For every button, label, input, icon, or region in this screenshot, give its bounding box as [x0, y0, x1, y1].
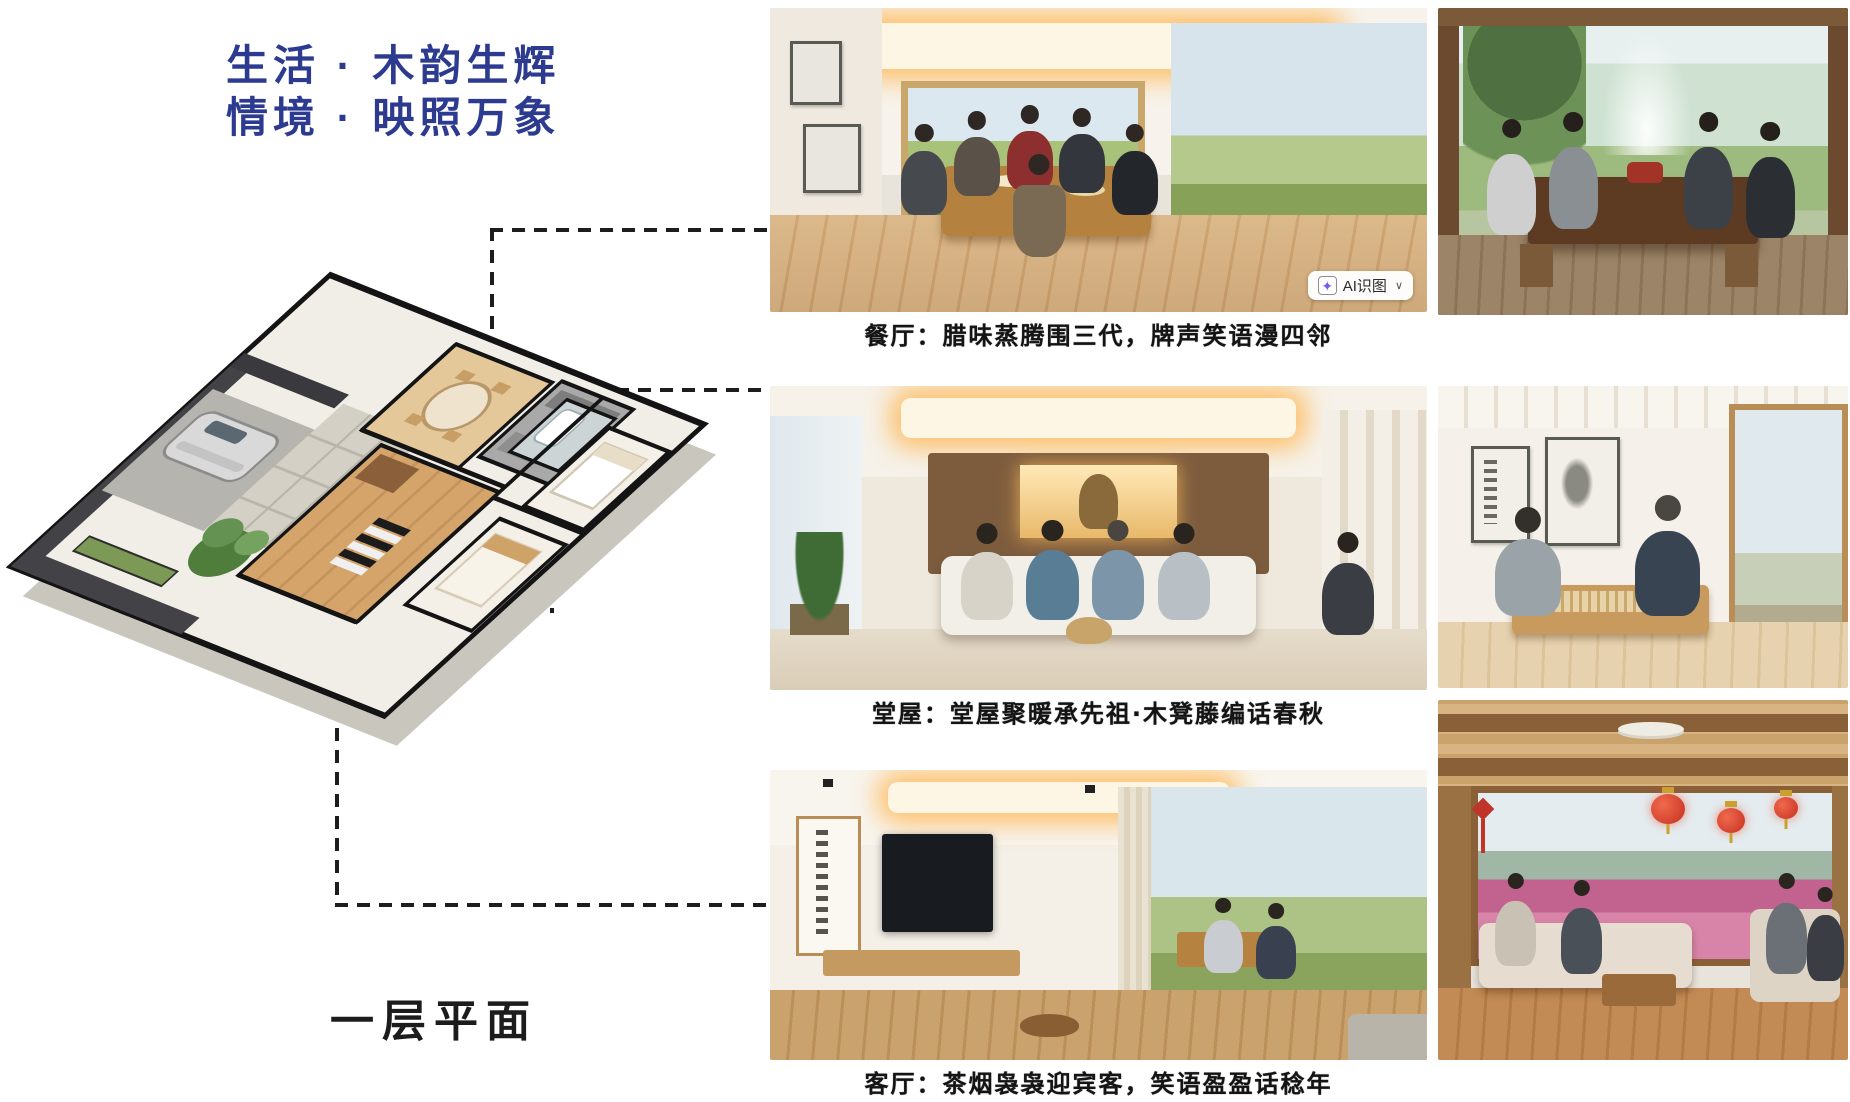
wood-floor — [770, 990, 1427, 1060]
wall-art — [803, 124, 862, 194]
person-silhouette — [1112, 124, 1158, 215]
callout-line-living-horizontal — [335, 903, 772, 907]
caption-dining: 餐厅：腊味蒸腾围三代，牌声笑语漫四邻 — [770, 316, 1427, 351]
presentation-slide: 生活 · 木韵生辉 情境 · 映照万象 — [0, 0, 1850, 1102]
floor-plan-label: 一层平面 — [330, 985, 538, 1049]
ceiling-cove-light — [901, 398, 1295, 438]
chair — [1725, 244, 1758, 287]
photo-rattan-weaving — [1438, 386, 1848, 688]
floor-plan-isometric — [0, 255, 780, 855]
person-weaving — [1495, 507, 1561, 616]
downlight — [823, 779, 833, 787]
person-silhouette — [1204, 898, 1243, 973]
photo-dining-room-family: ✦ AI识图 ∨ — [770, 8, 1427, 312]
person-silhouette — [961, 523, 1014, 620]
armchair — [1348, 1014, 1427, 1060]
red-lantern — [1717, 808, 1745, 833]
tv-cabinet — [823, 950, 1020, 976]
hot-pot — [1627, 162, 1664, 183]
tv-screen — [882, 834, 994, 933]
person-silhouette — [1059, 108, 1105, 193]
photo-lantern-living-room — [1438, 700, 1848, 1060]
potted-plant — [790, 532, 849, 635]
callout-line-dining-horizontal — [490, 228, 772, 232]
steam — [1602, 33, 1692, 156]
person-weaving — [1635, 495, 1701, 616]
photo-hall-family — [770, 386, 1427, 690]
person-silhouette — [1487, 119, 1536, 236]
ceiling-beam — [1438, 758, 1848, 776]
dog — [1020, 1014, 1079, 1037]
chevron-down-icon: ∨ — [1395, 279, 1403, 292]
wall-art — [790, 41, 842, 105]
person-silhouette — [1158, 523, 1211, 620]
caption-living: 客厅：茶烟袅袅迎宾客，笑语盈盈话稔年 — [770, 1064, 1427, 1099]
person-silhouette — [1766, 873, 1807, 974]
person-silhouette — [1495, 873, 1536, 967]
dog — [1066, 617, 1112, 644]
deck-floor — [1438, 235, 1848, 315]
ai-badge-label: AI识图 — [1343, 275, 1387, 296]
coffee-table — [1602, 974, 1676, 1006]
ai-image-recognition-badge[interactable]: ✦ AI识图 ∨ — [1308, 271, 1413, 300]
calligraphy-scroll — [796, 816, 861, 955]
person-silhouette — [1549, 112, 1598, 229]
slide-title-line2: 情境 · 映照万象 — [226, 92, 560, 144]
person-silhouette — [1684, 112, 1733, 229]
person-silhouette — [1256, 903, 1295, 978]
photo-rustic-dining — [1438, 8, 1848, 315]
person-silhouette — [1322, 532, 1375, 635]
person-silhouette — [1746, 122, 1795, 239]
ceiling-fan — [1618, 722, 1684, 736]
slide-title: 生活 · 木韵生辉 情境 · 映照万象 — [226, 40, 560, 144]
person-silhouette — [1561, 880, 1602, 974]
ai-sparkle-icon: ✦ — [1318, 276, 1337, 295]
chinese-knot-tassel — [1481, 819, 1485, 853]
person-silhouette — [954, 111, 1000, 196]
person-silhouette — [1092, 520, 1145, 620]
wood-post — [1438, 786, 1471, 1009]
downlight — [1085, 785, 1095, 793]
person-silhouette — [1013, 154, 1066, 257]
photo-living-room-tv — [770, 770, 1427, 1060]
chair — [1520, 244, 1553, 287]
slide-title-line1: 生活 · 木韵生辉 — [226, 40, 560, 92]
caption-hall: 堂屋：堂屋聚暖承先祖·木凳藤编话春秋 — [770, 694, 1427, 729]
red-lantern — [1651, 794, 1685, 824]
person-silhouette — [1807, 887, 1844, 981]
person-silhouette — [901, 124, 947, 215]
person-silhouette — [1026, 520, 1079, 620]
